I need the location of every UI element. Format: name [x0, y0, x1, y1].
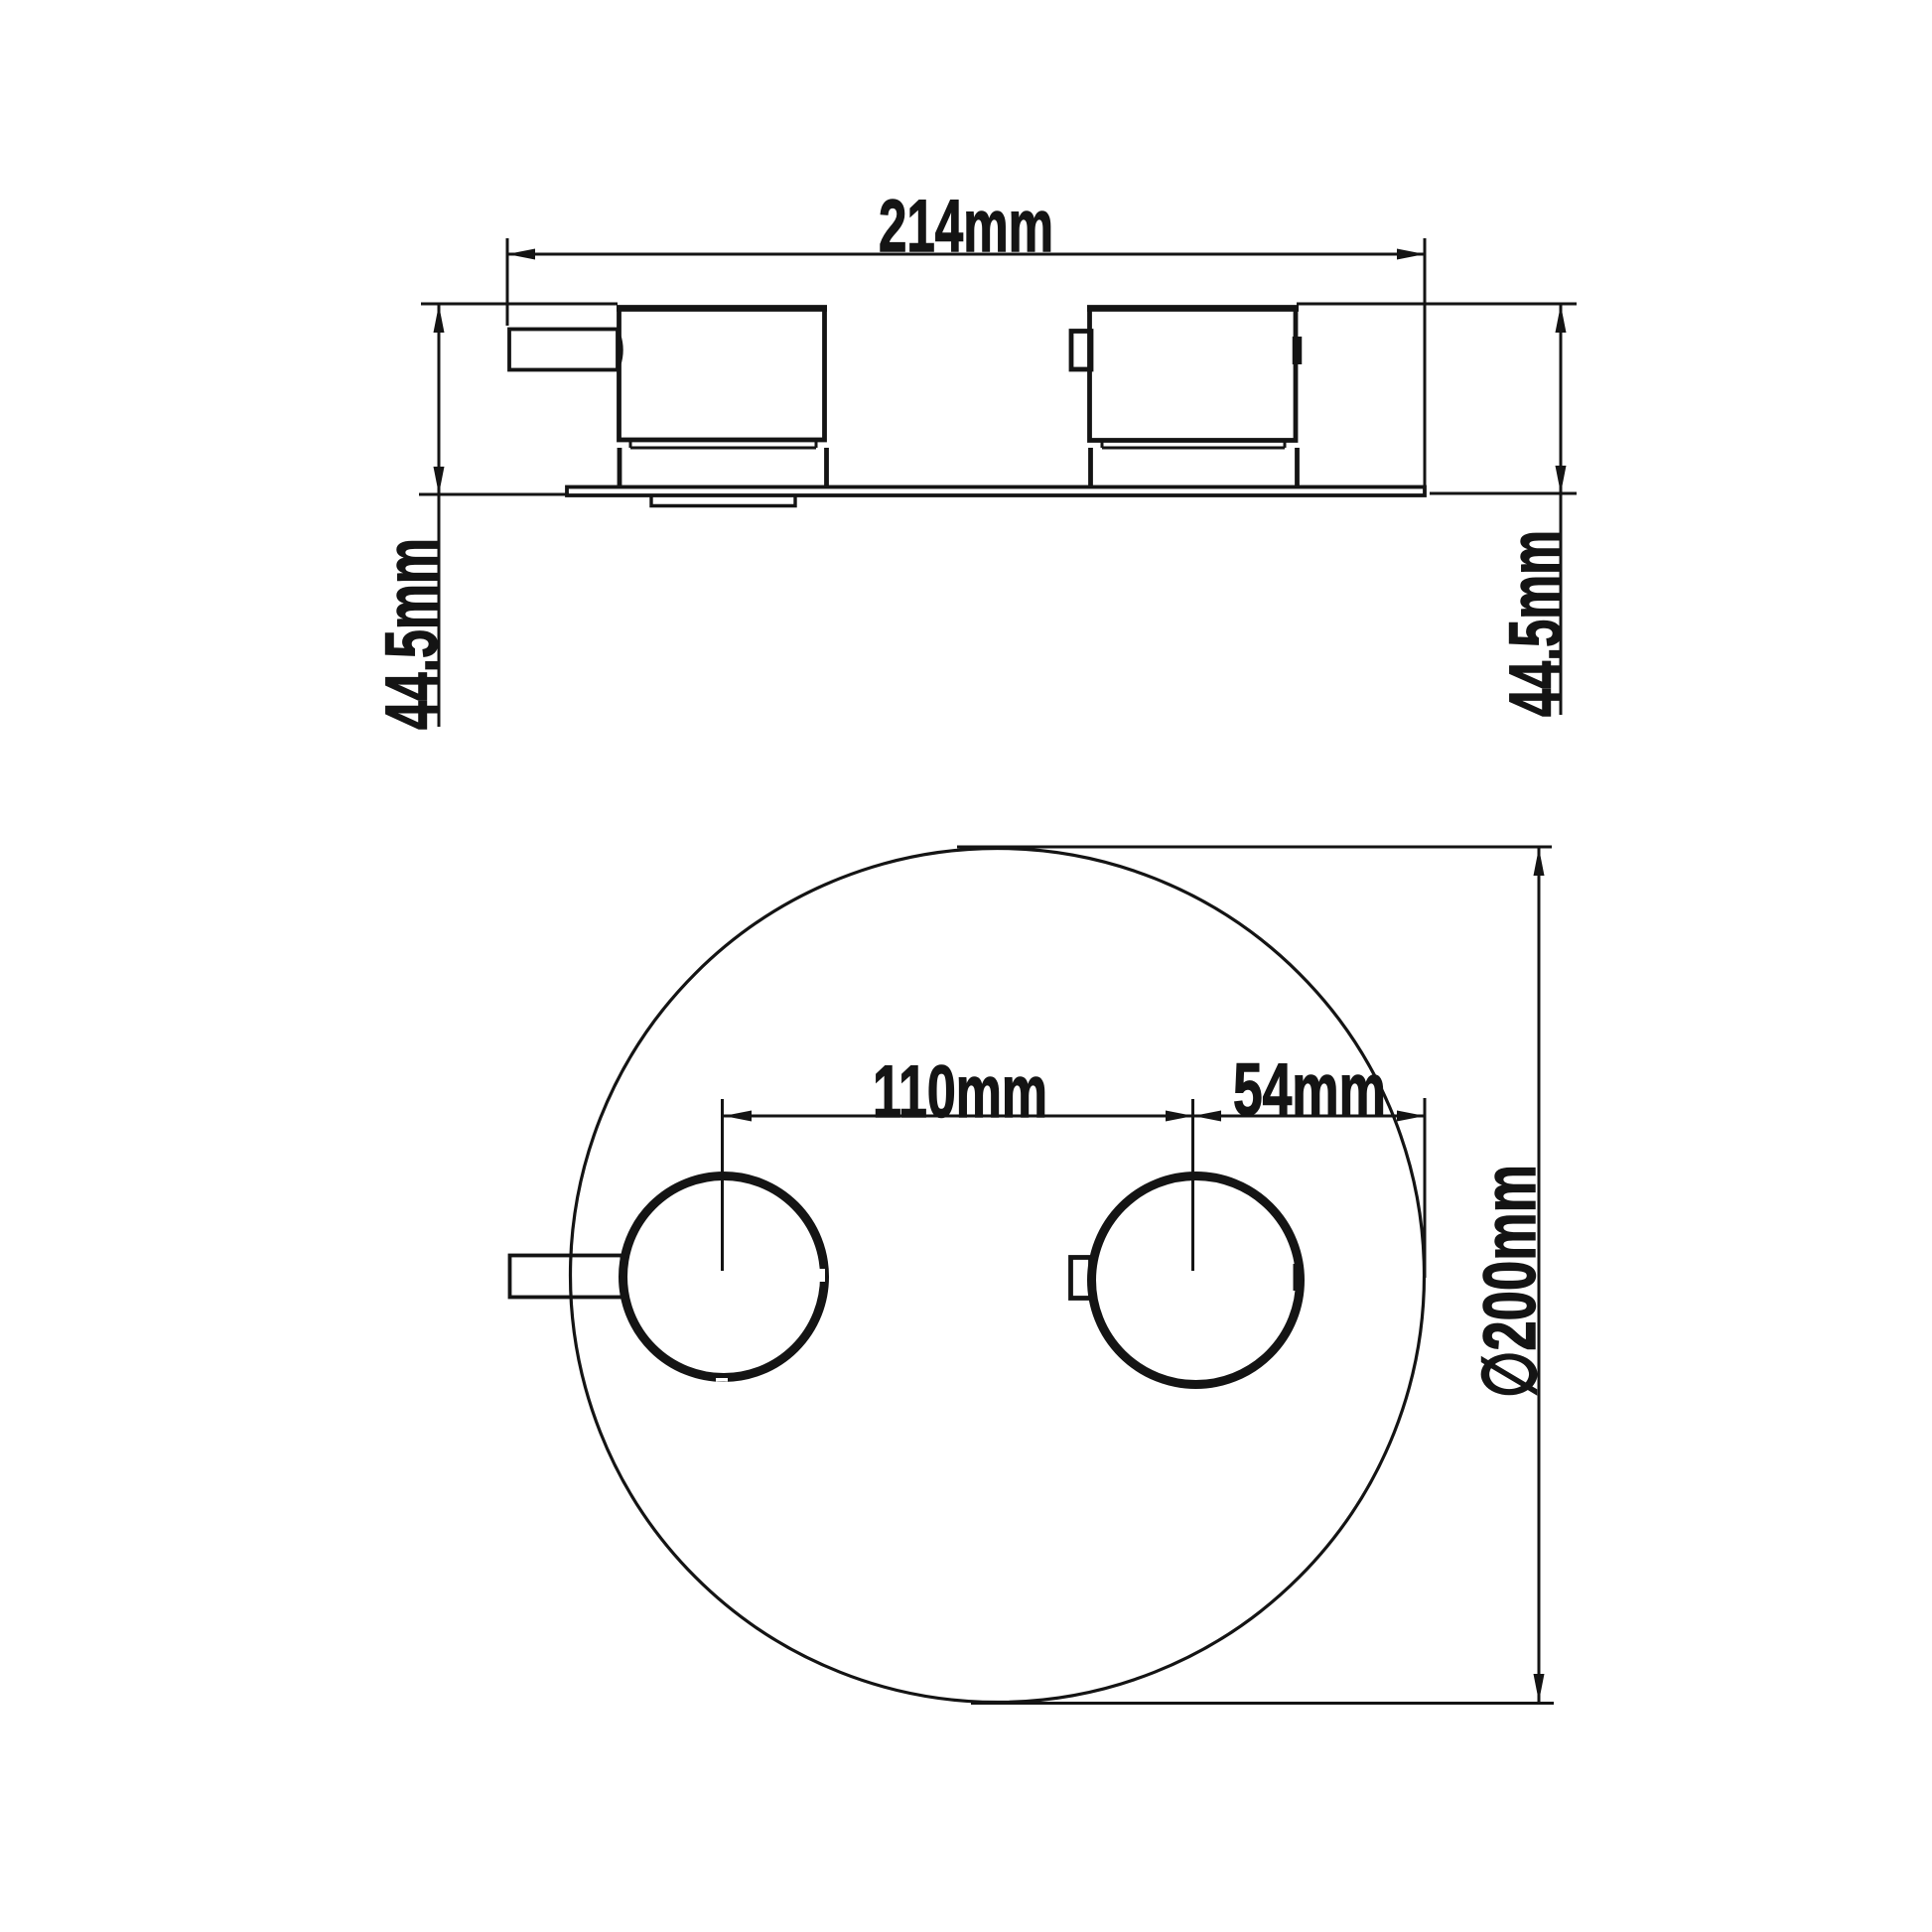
svg-text:44.5mm: 44.5mm	[370, 538, 453, 730]
svg-text:44.5mm: 44.5mm	[1494, 530, 1577, 717]
svg-text:54mm: 54mm	[1233, 1048, 1386, 1131]
svg-text:110mm: 110mm	[873, 1050, 1047, 1133]
